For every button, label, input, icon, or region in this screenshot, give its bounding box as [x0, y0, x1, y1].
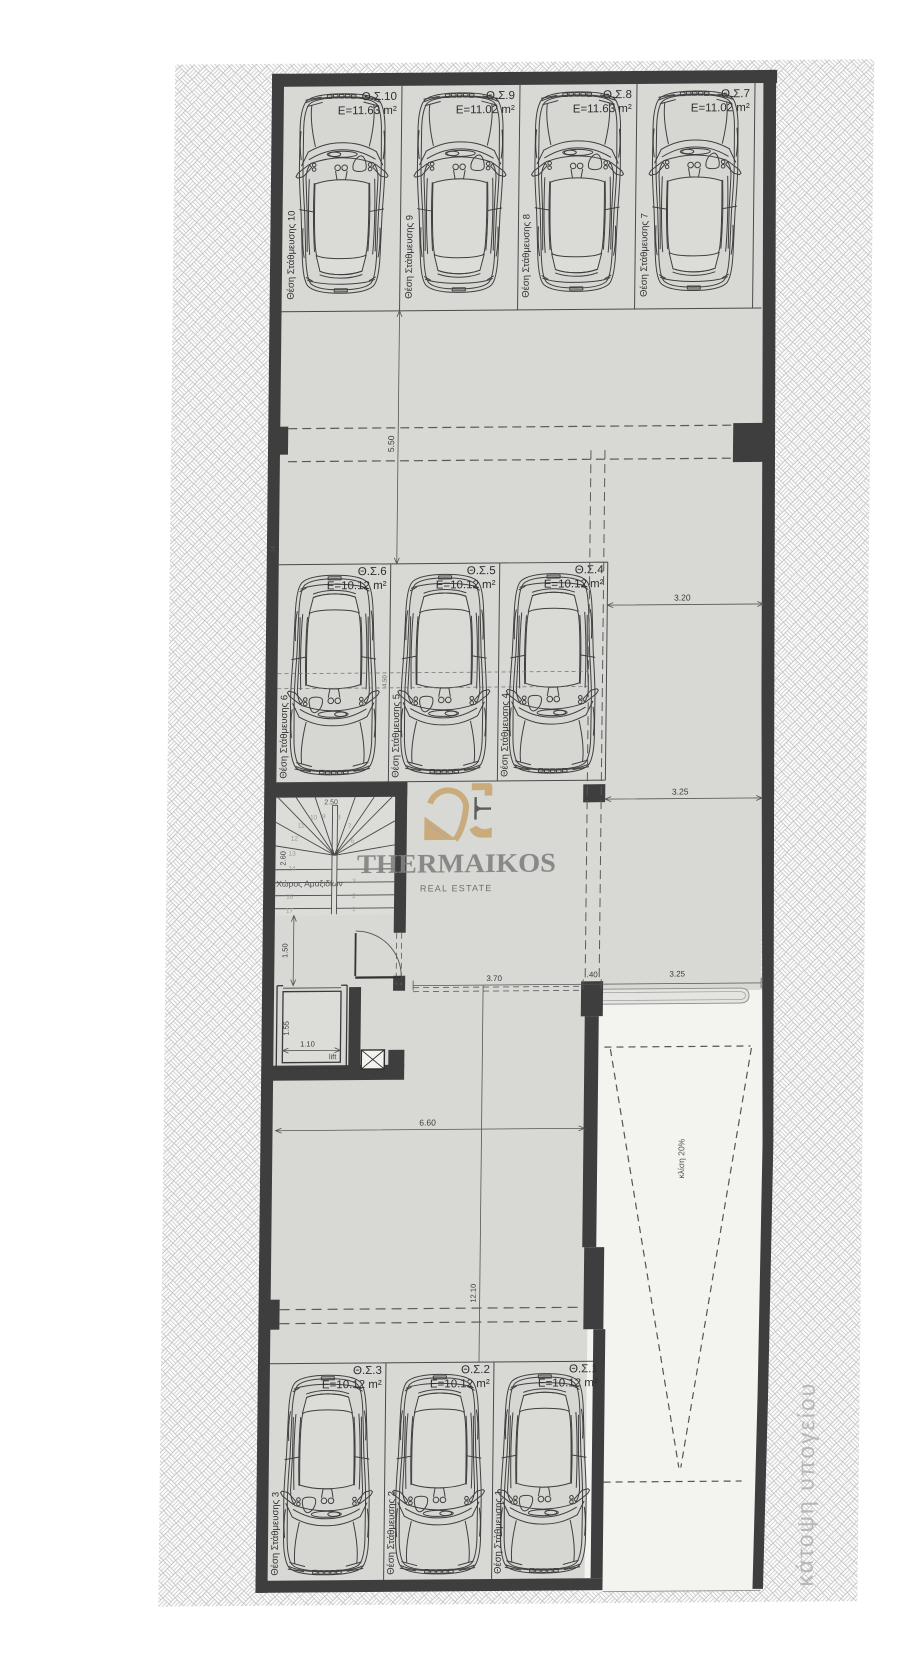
svg-text:lift: lift — [329, 1052, 338, 1061]
svg-text:8: 8 — [337, 814, 341, 821]
svg-text:13: 13 — [289, 851, 297, 858]
svg-text:κλίση 20%: κλίση 20% — [676, 1138, 686, 1178]
svg-text:E=10.12 m²: E=10.12 m² — [436, 579, 496, 591]
svg-text:Θέση Στάθμευσης 3: Θέση Στάθμευσης 3 — [270, 1492, 282, 1576]
svg-text:12: 12 — [291, 836, 299, 843]
svg-text:Θ.Σ.7: Θ.Σ.7 — [721, 88, 750, 100]
svg-text:7: 7 — [348, 823, 352, 830]
svg-text:2: 2 — [352, 893, 356, 900]
svg-text:.40: .40 — [587, 970, 599, 979]
svg-text:10: 10 — [310, 814, 318, 821]
svg-text:Θ.Σ.6: Θ.Σ.6 — [358, 566, 387, 578]
svg-text:1: 1 — [352, 906, 356, 913]
svg-text:Θέση Στάθμευσης 4: Θέση Στάθμευσης 4 — [499, 693, 511, 777]
svg-text:E=10.12 m²: E=10.12 m² — [538, 1377, 598, 1389]
svg-text:3.25: 3.25 — [669, 969, 685, 978]
svg-text:1.10: 1.10 — [300, 1039, 315, 1048]
svg-text:Θ.Σ.5: Θ.Σ.5 — [467, 565, 496, 577]
svg-text:Θ.Σ.10: Θ.Σ.10 — [362, 91, 397, 103]
svg-text:Θέση Στάθμευσης 9: Θέση Στάθμευσης 9 — [404, 215, 416, 299]
svg-text:6.60: 6.60 — [419, 1117, 436, 1127]
svg-text:E=10.12 m²: E=10.12 m² — [544, 578, 604, 590]
svg-text:1.55: 1.55 — [282, 1021, 291, 1036]
svg-text:2.50: 2.50 — [324, 799, 338, 806]
svg-text:Θέση Στάθμευσης 1: Θέση Στάθμευσης 1 — [493, 1490, 505, 1574]
svg-text:Θ.Σ.8: Θ.Σ.8 — [603, 89, 632, 101]
svg-text:9: 9 — [322, 813, 326, 820]
svg-text:Θέση Στάθμευσης 6: Θέση Στάθμευσης 6 — [278, 695, 290, 779]
svg-text:3.20: 3.20 — [674, 592, 691, 602]
svg-text:Θ.Σ.3: Θ.Σ.3 — [353, 1365, 382, 1377]
svg-text:E=11.02 m²: E=11.02 m² — [691, 102, 750, 114]
svg-text:Θ.Σ.1: Θ.Σ.1 — [569, 1363, 598, 1375]
svg-text:16: 16 — [286, 894, 294, 901]
svg-text:1.50: 1.50 — [280, 943, 289, 958]
svg-text:17: 17 — [286, 908, 294, 915]
svg-text:E=10.12 m²: E=10.12 m² — [322, 1379, 382, 1391]
svg-text:Θ.Σ.2: Θ.Σ.2 — [461, 1364, 490, 1376]
svg-text:.16: .16 — [271, 545, 277, 554]
svg-text:3.70: 3.70 — [486, 974, 502, 983]
svg-text:THERMAIKOS: THERMAIKOS — [357, 848, 556, 880]
svg-text:11: 11 — [298, 823, 305, 830]
svg-text:Θέση Στάθμευσης 10: Θέση Στάθμευσης 10 — [286, 211, 298, 300]
svg-text:4.50: 4.50 — [382, 675, 388, 687]
svg-text:E=11.02 m²: E=11.02 m² — [456, 104, 515, 116]
svg-text:12.10: 12.10 — [469, 1284, 478, 1303]
svg-text:E=11.63 m²: E=11.63 m² — [573, 103, 632, 115]
svg-text:Θέση Στάθμευσης 8: Θέση Στάθμευσης 8 — [521, 214, 533, 298]
svg-text:Θέση Στάθμευσης 7: Θέση Στάθμευσης 7 — [639, 213, 651, 297]
svg-text:6: 6 — [351, 838, 355, 845]
svg-text:14: 14 — [288, 866, 296, 873]
svg-text:E=10.12 m²: E=10.12 m² — [327, 580, 387, 592]
svg-text:3: 3 — [352, 878, 356, 885]
svg-text:Θέση Στάθμευσης 2: Θέση Στάθμευσης 2 — [386, 1491, 398, 1575]
svg-text:E=11.63 m²: E=11.63 m² — [338, 105, 397, 117]
svg-text:Θ.Σ.9: Θ.Σ.9 — [486, 90, 515, 102]
svg-text:3.25: 3.25 — [672, 786, 689, 796]
svg-text:Χώρος Αμαξιδίων: Χώρος Αμαξιδίων — [276, 878, 343, 889]
svg-text:REAL ESTATE: REAL ESTATE — [420, 883, 493, 894]
svg-text:κάτοψη υπογείου: κάτοψη υπογείου — [791, 1382, 819, 1587]
svg-text:5.50: 5.50 — [386, 435, 396, 452]
svg-text:Θέση Στάθμευσης 5: Θέση Στάθμευσης 5 — [390, 694, 402, 778]
svg-text:2.60: 2.60 — [278, 851, 287, 866]
svg-text:E=10.12 m²: E=10.12 m² — [430, 1378, 490, 1390]
